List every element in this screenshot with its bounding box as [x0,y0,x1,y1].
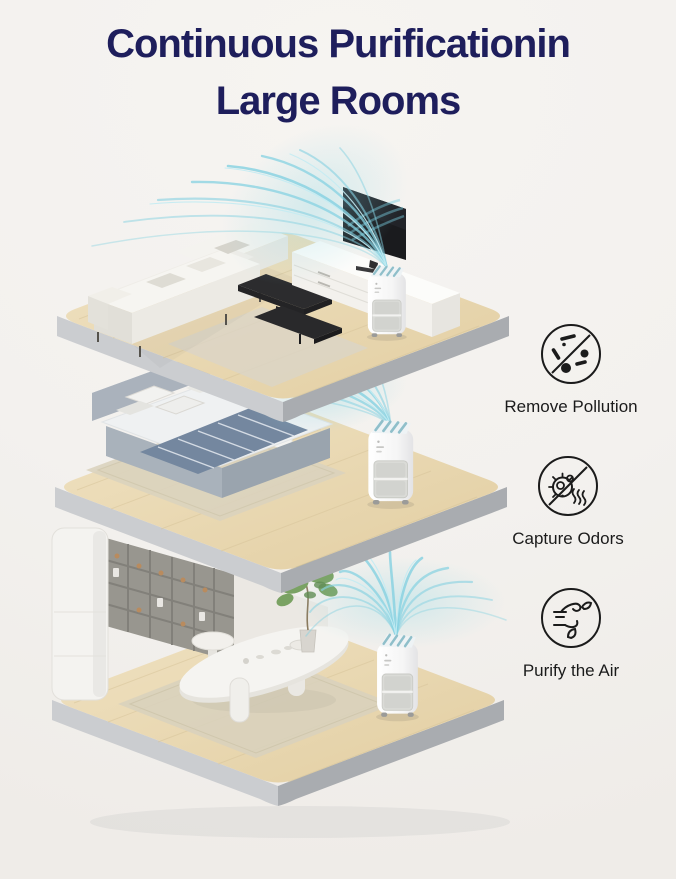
air-purifier [367,265,407,341]
rooms-illustration [0,0,676,879]
air-purifier [376,634,419,721]
storage-column [52,528,108,700]
air-purifier [367,420,414,509]
product-infographic: Continuous Purificationin Large Rooms [0,0,676,879]
living-room-floor [57,91,509,422]
